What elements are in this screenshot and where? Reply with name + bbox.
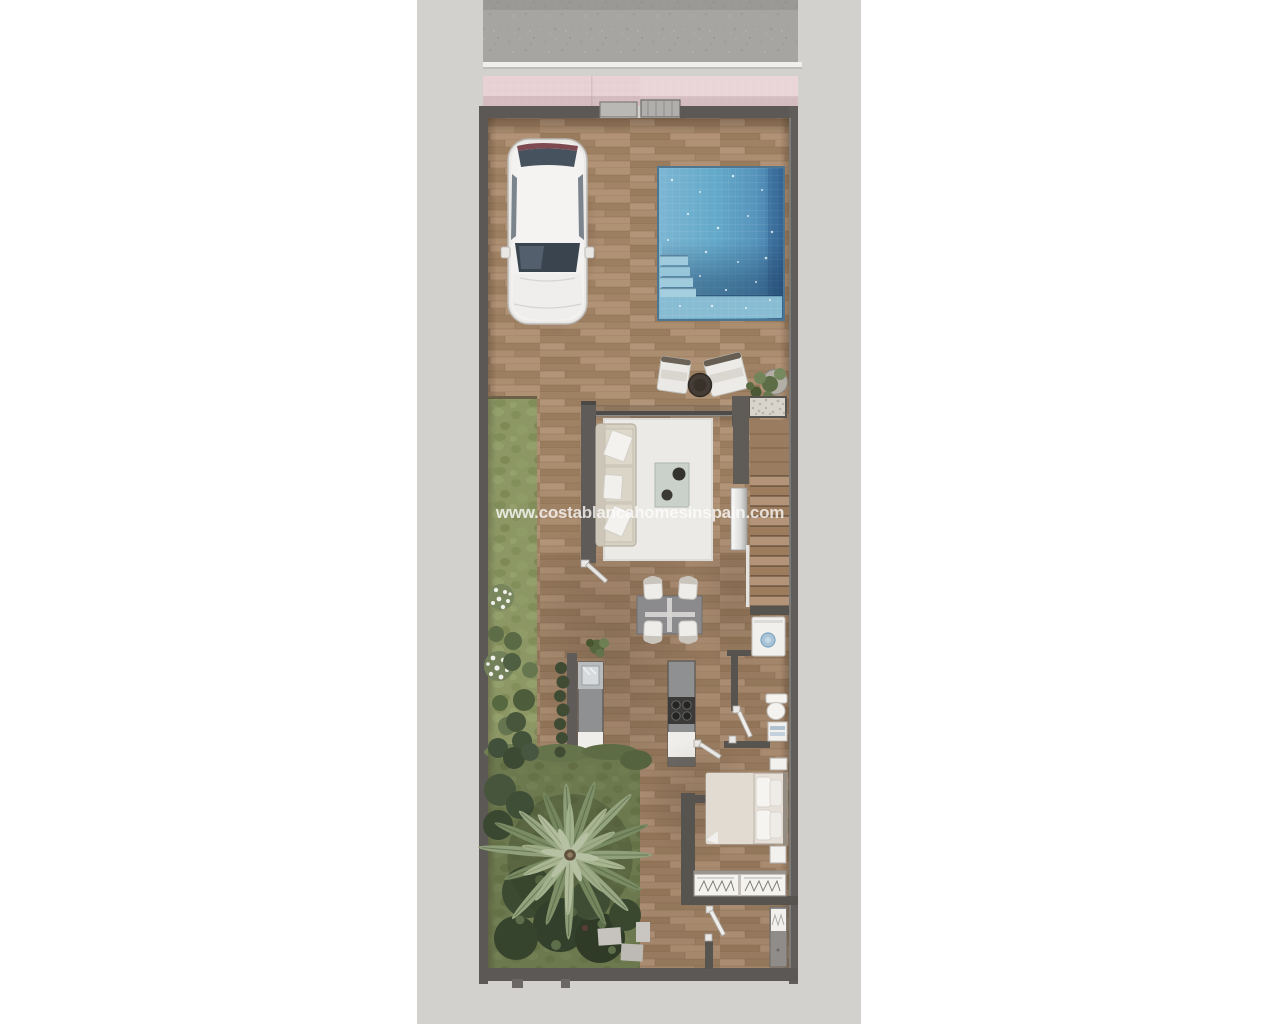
svg-text:www.costablancahomesinspain.co: www.costablancahomesinspain.com bbox=[495, 503, 784, 522]
